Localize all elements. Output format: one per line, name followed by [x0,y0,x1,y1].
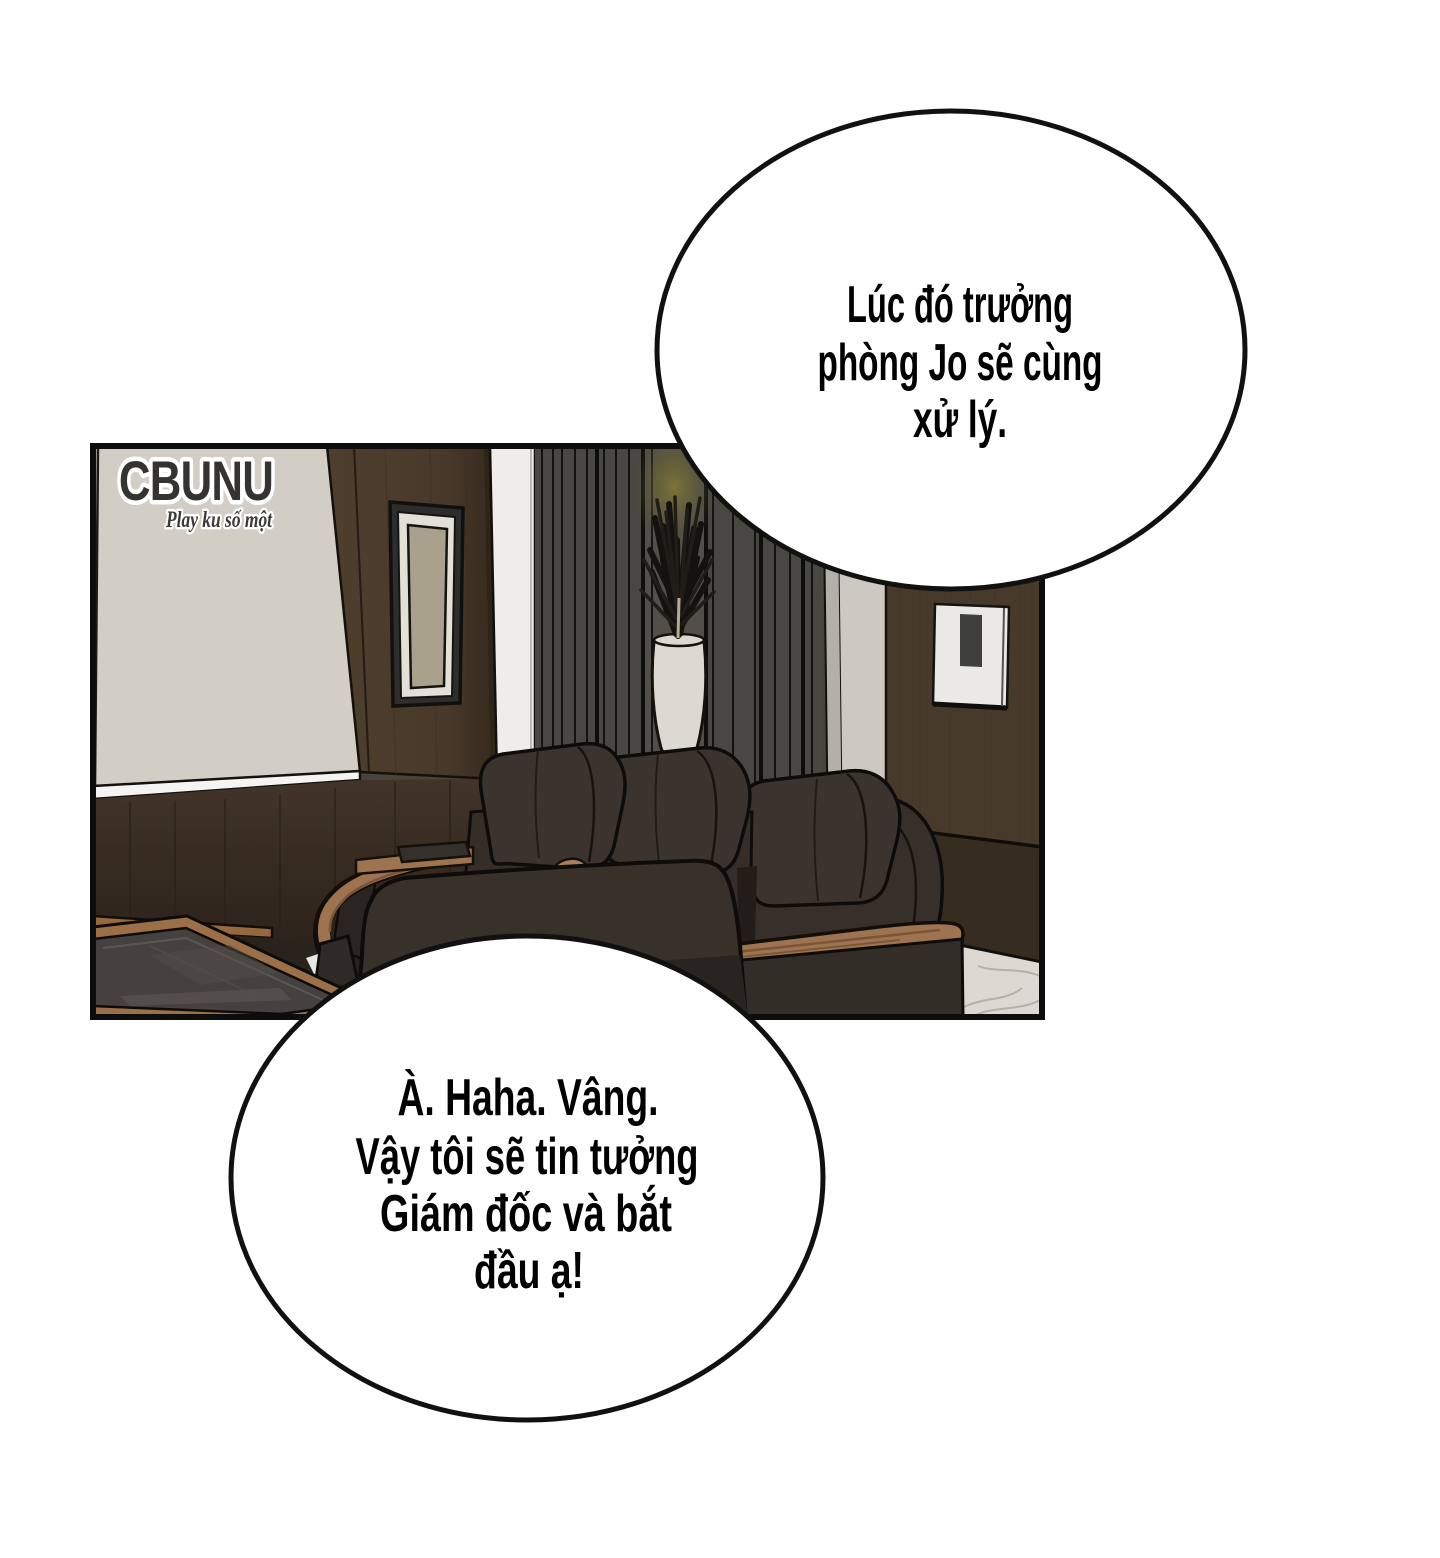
svg-text:À. Haha. Vâng.: À. Haha. Vâng. [398,1068,659,1127]
svg-text:Lúc đó trưởng: Lúc đó trưởng [847,276,1073,334]
svg-text:Vậy tôi sẽ tin tưởng: Vậy tôi sẽ tin tưởng [356,1126,699,1185]
svg-text:phòng Jo sẽ cùng: phòng Jo sẽ cùng [817,334,1102,392]
svg-text:xử lý.: xử lý. [913,391,1007,448]
svg-text:CBUNU: CBUNU [119,450,273,512]
svg-text:Giám đốc và bắt: Giám đốc và bắt [380,1183,672,1242]
svg-text:Play ku số một: Play ku số một [165,508,273,533]
svg-text:đầu ạ!: đầu ạ! [474,1241,584,1300]
